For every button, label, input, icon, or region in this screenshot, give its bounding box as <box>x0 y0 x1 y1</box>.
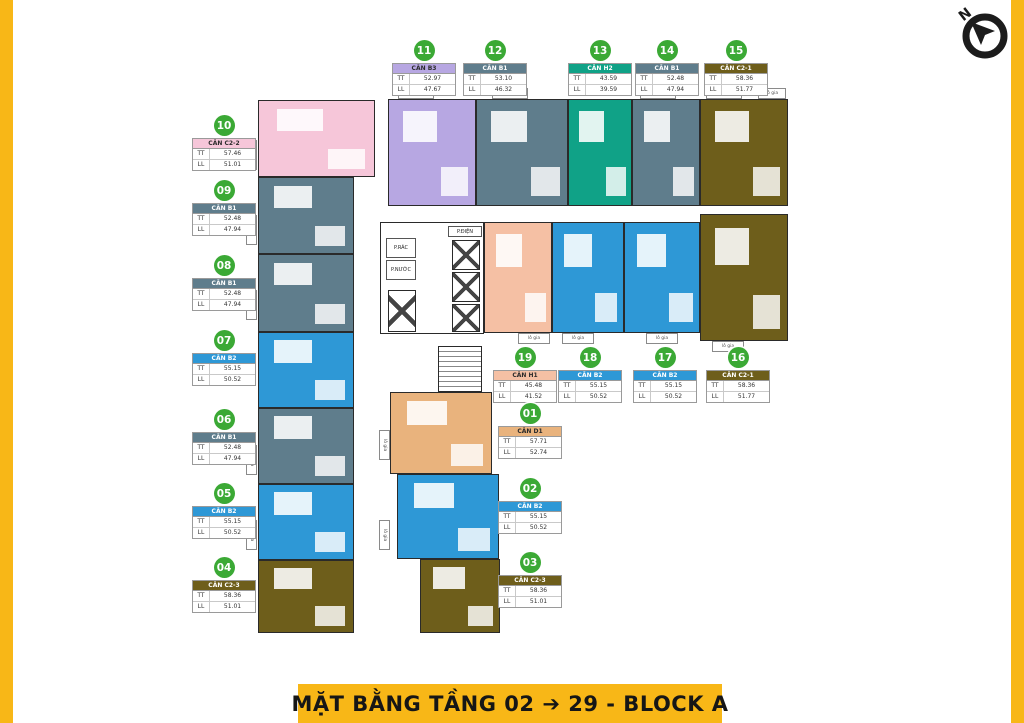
unit-info-card: CĂN C2-2TT57.46LL51.01 <box>192 138 256 171</box>
unit-area-18 <box>552 222 624 333</box>
trash-room-label: P.RÁC <box>386 238 416 258</box>
unit-area-ll-row: LL51.01 <box>499 597 561 607</box>
unit-area-tt-row: TT52.97 <box>393 74 455 85</box>
unit-tag-15: 15CĂN C2-1TT58.36LL51.77 <box>705 40 767 96</box>
unit-info-card: CĂN H2TT43.59LL39.59 <box>568 63 632 96</box>
balcony-label: lô gia <box>646 333 678 344</box>
unit-number-badge: 16 <box>728 347 749 368</box>
unit-name: CĂN C2-3 <box>499 576 561 586</box>
left-accent-strip <box>0 0 13 723</box>
unit-info-card: CĂN D1TT57.71LL52.74 <box>498 426 562 459</box>
unit-number-badge: 17 <box>655 347 676 368</box>
unit-area-ll-row: LL51.01 <box>193 602 255 612</box>
unit-area-11 <box>388 99 476 206</box>
unit-info-card: CĂN H1TT45.48LL41.52 <box>493 370 557 403</box>
unit-info-card: CĂN B1TT52.48LL47.94 <box>635 63 699 96</box>
compass-icon: N <box>952 2 1014 64</box>
unit-tag-11: 11CĂN B3TT52.97LL47.67 <box>393 40 455 96</box>
unit-info-card: CĂN B1TT52.48LL47.94 <box>192 432 256 465</box>
unit-area-ll-row: LL47.94 <box>193 300 255 310</box>
unit-number-badge: 19 <box>515 347 536 368</box>
unit-tag-04: 04CĂN C2-3TT58.36LL51.01 <box>193 557 255 613</box>
unit-number-badge: 11 <box>414 40 435 61</box>
unit-info-card: CĂN C2-1TT58.36LL51.77 <box>706 370 770 403</box>
unit-number-badge: 14 <box>657 40 678 61</box>
unit-info-card: CĂN B2TT55.15LL50.52 <box>633 370 697 403</box>
unit-number-badge: 03 <box>520 552 541 573</box>
unit-area-09 <box>258 177 354 254</box>
unit-area-tt-row: TT57.46 <box>193 149 255 160</box>
unit-area-ll-row: LL51.01 <box>193 160 255 170</box>
electrical-room-label: P.ĐIỆN <box>448 226 482 237</box>
unit-area-10 <box>258 100 375 177</box>
unit-tag-02: 02CĂN B2TT55.15LL50.52 <box>499 478 561 534</box>
elevator-icon <box>388 290 416 332</box>
unit-area-13 <box>568 99 632 206</box>
unit-tag-18: 18CĂN B2TT55.15LL50.52 <box>559 347 621 403</box>
unit-tag-05: 05CĂN B2TT55.15LL50.52 <box>193 483 255 539</box>
unit-number-badge: 18 <box>580 347 601 368</box>
unit-info-card: CĂN B2TT55.15LL50.52 <box>498 501 562 534</box>
unit-area-tt-row: TT52.48 <box>636 74 698 85</box>
unit-area-ll-row: LL39.59 <box>569 85 631 95</box>
unit-area-tt-row: TT55.15 <box>634 381 696 392</box>
unit-area-tt-row: TT58.36 <box>193 591 255 602</box>
unit-area-07 <box>258 332 354 408</box>
unit-area-ll-row: LL50.52 <box>559 392 621 402</box>
unit-area-tt-row: TT58.36 <box>499 586 561 597</box>
unit-number-badge: 09 <box>214 180 235 201</box>
water-room-label: P.NƯỚC <box>386 260 416 280</box>
unit-info-card: CĂN B1TT52.48LL47.94 <box>192 203 256 236</box>
unit-area-14 <box>632 99 700 206</box>
unit-tag-10: 10CĂN C2-2TT57.46LL51.01 <box>193 115 255 171</box>
unit-area-17 <box>624 222 700 333</box>
unit-tag-17: 17CĂN B2TT55.15LL50.52 <box>634 347 696 403</box>
unit-info-card: CĂN B3TT52.97LL47.67 <box>392 63 456 96</box>
unit-name: CĂN H2 <box>569 64 631 74</box>
unit-name: CĂN H1 <box>494 371 556 381</box>
unit-name: CĂN B1 <box>464 64 526 74</box>
unit-area-tt-row: TT52.48 <box>193 443 255 454</box>
unit-area-ll-row: LL51.77 <box>707 392 769 402</box>
unit-area-12 <box>476 99 568 206</box>
unit-area-tt-row: TT53.10 <box>464 74 526 85</box>
unit-area-tt-row: TT57.71 <box>499 437 561 448</box>
unit-area-15 <box>700 99 788 206</box>
unit-name: CĂN C2-1 <box>707 371 769 381</box>
unit-area-tt-row: TT55.15 <box>499 512 561 523</box>
unit-area-tt-row: TT43.59 <box>569 74 631 85</box>
unit-tag-13: 13CĂN H2TT43.59LL39.59 <box>569 40 631 96</box>
unit-area-ll-row: LL46.32 <box>464 85 526 95</box>
stairs-icon <box>438 346 482 392</box>
unit-info-card: CĂN C2-3TT58.36LL51.01 <box>192 580 256 613</box>
unit-area-ll-row: LL50.52 <box>193 528 255 538</box>
unit-info-card: CĂN C2-1TT58.36LL51.77 <box>704 63 768 96</box>
unit-area-tt-row: TT52.48 <box>193 289 255 300</box>
unit-tag-07: 07CĂN B2TT55.15LL50.52 <box>193 330 255 386</box>
unit-name: CĂN B1 <box>636 64 698 74</box>
unit-area-ll-row: LL52.74 <box>499 448 561 458</box>
unit-number-badge: 05 <box>214 483 235 504</box>
unit-number-badge: 10 <box>214 115 235 136</box>
elevator-icon <box>452 272 480 302</box>
unit-area-02 <box>397 474 499 559</box>
unit-name: CĂN C2-1 <box>705 64 767 74</box>
unit-area-03 <box>420 559 500 633</box>
unit-name: CĂN B1 <box>193 279 255 289</box>
unit-area-06 <box>258 408 354 484</box>
unit-tag-01: 01CĂN D1TT57.71LL52.74 <box>499 403 561 459</box>
unit-area-ll-row: LL51.77 <box>705 85 767 95</box>
unit-number-badge: 13 <box>590 40 611 61</box>
unit-name: CĂN B1 <box>193 204 255 214</box>
unit-info-card: CĂN B1TT53.10LL46.32 <box>463 63 527 96</box>
unit-number-badge: 06 <box>214 409 235 430</box>
unit-tag-14: 14CĂN B1TT52.48LL47.94 <box>636 40 698 96</box>
unit-tag-19: 19CĂN H1TT45.48LL41.52 <box>494 347 556 403</box>
unit-info-card: CĂN C2-3TT58.36LL51.01 <box>498 575 562 608</box>
unit-info-card: CĂN B2TT55.15LL50.52 <box>192 506 256 539</box>
unit-number-badge: 01 <box>520 403 541 424</box>
unit-area-05 <box>258 484 354 560</box>
unit-area-tt-row: TT55.15 <box>193 364 255 375</box>
unit-area-08 <box>258 254 354 332</box>
unit-area-tt-row: TT58.36 <box>707 381 769 392</box>
unit-name: CĂN D1 <box>499 427 561 437</box>
unit-number-badge: 04 <box>214 557 235 578</box>
unit-area-ll-row: LL47.94 <box>636 85 698 95</box>
unit-area-ll-row: LL50.52 <box>499 523 561 533</box>
unit-name: CĂN B1 <box>193 433 255 443</box>
unit-area-tt-row: TT55.15 <box>193 517 255 528</box>
unit-tag-03: 03CĂN C2-3TT58.36LL51.01 <box>499 552 561 608</box>
unit-tag-16: 16CĂN C2-1TT58.36LL51.77 <box>707 347 769 403</box>
unit-area-04 <box>258 560 354 633</box>
page-title: MẶT BẰNG TẦNG 02 ➔ 29 - BLOCK A <box>291 692 728 716</box>
unit-name: CĂN C2-3 <box>193 581 255 591</box>
unit-area-16 <box>700 214 788 341</box>
unit-name: CĂN C2-2 <box>193 139 255 149</box>
balcony-label: lô gia <box>379 430 390 460</box>
unit-area-ll-row: LL50.52 <box>634 392 696 402</box>
unit-tag-12: 12CĂN B1TT53.10LL46.32 <box>464 40 526 96</box>
elevator-icon <box>452 304 480 332</box>
unit-name: CĂN B2 <box>634 371 696 381</box>
right-accent-strip <box>1011 0 1024 723</box>
unit-tag-09: 09CĂN B1TT52.48LL47.94 <box>193 180 255 236</box>
unit-area-tt-row: TT45.48 <box>494 381 556 392</box>
unit-area-tt-row: TT55.15 <box>559 381 621 392</box>
unit-number-badge: 02 <box>520 478 541 499</box>
unit-name: CĂN B2 <box>559 371 621 381</box>
unit-tag-06: 06CĂN B1TT52.48LL47.94 <box>193 409 255 465</box>
unit-area-tt-row: TT52.48 <box>193 214 255 225</box>
unit-number-badge: 07 <box>214 330 235 351</box>
unit-area-01 <box>390 392 492 474</box>
balcony-label: lô gia <box>379 520 390 550</box>
unit-number-badge: 15 <box>726 40 747 61</box>
unit-area-ll-row: LL41.52 <box>494 392 556 402</box>
unit-area-ll-row: LL47.94 <box>193 225 255 235</box>
unit-name: CĂN B2 <box>193 507 255 517</box>
unit-area-ll-row: LL50.52 <box>193 375 255 385</box>
elevator-icon <box>452 240 480 270</box>
unit-tag-08: 08CĂN B1TT52.48LL47.94 <box>193 255 255 311</box>
title-bar: MẶT BẰNG TẦNG 02 ➔ 29 - BLOCK A <box>298 684 722 723</box>
unit-area-tt-row: TT58.36 <box>705 74 767 85</box>
unit-name: CĂN B2 <box>193 354 255 364</box>
page: N P.ĐIỆN P.RÁC P.NƯỚC <box>0 0 1024 723</box>
unit-area-ll-row: LL47.67 <box>393 85 455 95</box>
unit-area-19 <box>484 222 552 333</box>
unit-info-card: CĂN B1TT52.48LL47.94 <box>192 278 256 311</box>
unit-number-badge: 12 <box>485 40 506 61</box>
unit-number-badge: 08 <box>214 255 235 276</box>
unit-name: CĂN B2 <box>499 502 561 512</box>
unit-info-card: CĂN B2TT55.15LL50.52 <box>192 353 256 386</box>
unit-name: CĂN B3 <box>393 64 455 74</box>
balcony-label: lô gia <box>562 333 594 344</box>
unit-area-ll-row: LL47.94 <box>193 454 255 464</box>
unit-info-card: CĂN B2TT55.15LL50.52 <box>558 370 622 403</box>
balcony-label: lô gia <box>518 333 550 344</box>
